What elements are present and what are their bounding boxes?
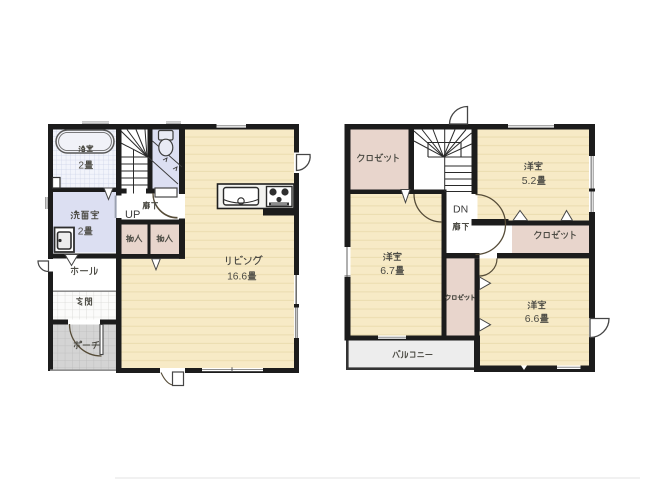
svg-text:6: 6: [241, 272, 247, 283]
svg-text:7: 7: [389, 265, 395, 277]
svg-text:2: 2: [78, 227, 84, 238]
svg-text:DN: DN: [453, 204, 468, 216]
svg-text:2: 2: [78, 161, 84, 172]
svg-text:6: 6: [534, 313, 540, 325]
svg-text:2: 2: [531, 175, 537, 187]
svg-text:UP: UP: [125, 209, 140, 221]
